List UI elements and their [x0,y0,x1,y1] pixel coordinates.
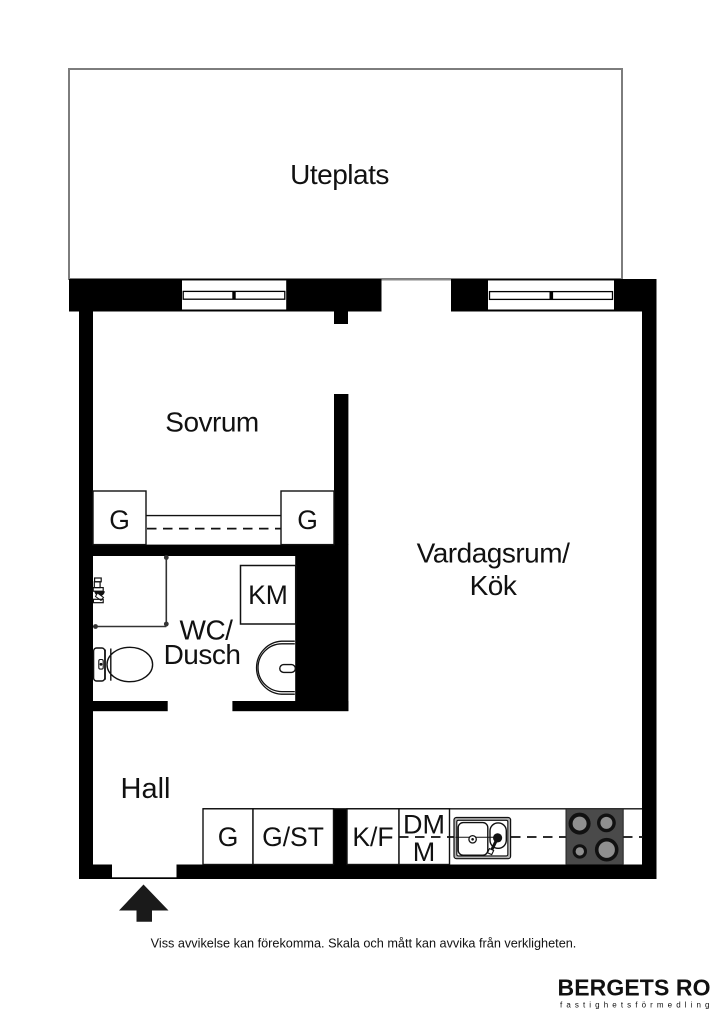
svg-text:Dusch: Dusch [164,639,241,670]
svg-text:Hall: Hall [121,773,171,805]
svg-text:G: G [109,505,130,535]
svg-text:G: G [297,505,318,535]
svg-text:K/F: K/F [352,822,393,852]
svg-text:Kök: Kök [470,570,518,601]
svg-text:G: G [218,822,239,852]
svg-text:Uteplats: Uteplats [290,159,389,190]
svg-text:Sovrum: Sovrum [165,407,258,438]
svg-text:G/ST: G/ST [262,822,324,852]
svg-text:Vardagsrum/: Vardagsrum/ [417,538,570,569]
svg-text:KM: KM [248,580,288,610]
svg-text:BERGETS RO: BERGETS RO [558,975,711,1001]
svg-text:Viss avvikelse kan förekomma.: Viss avvikelse kan förekomma. Skala och … [151,937,577,951]
svg-text:fastighetsförmedling: fastighetsförmedling [560,1001,714,1010]
svg-text:M: M [413,837,436,867]
svg-text:DM: DM [403,810,445,840]
